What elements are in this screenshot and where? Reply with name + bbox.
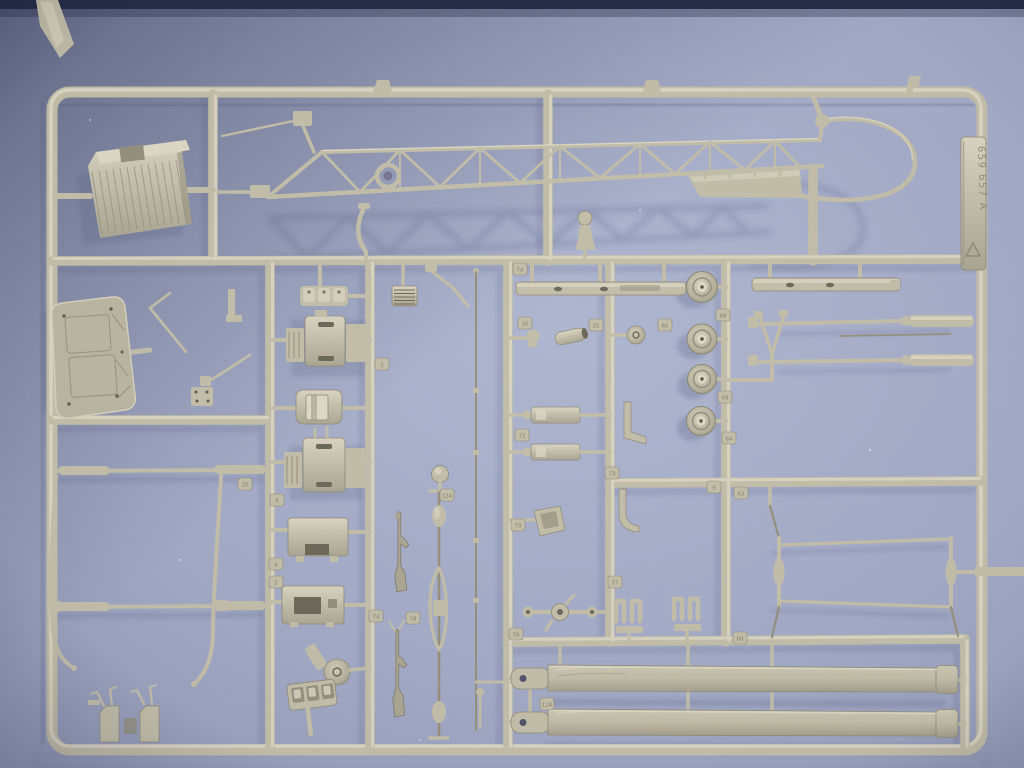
film-grain — [0, 0, 1024, 768]
sprue-photo: 659 657 A 7A220845747812A12A797672302566… — [0, 0, 1024, 768]
